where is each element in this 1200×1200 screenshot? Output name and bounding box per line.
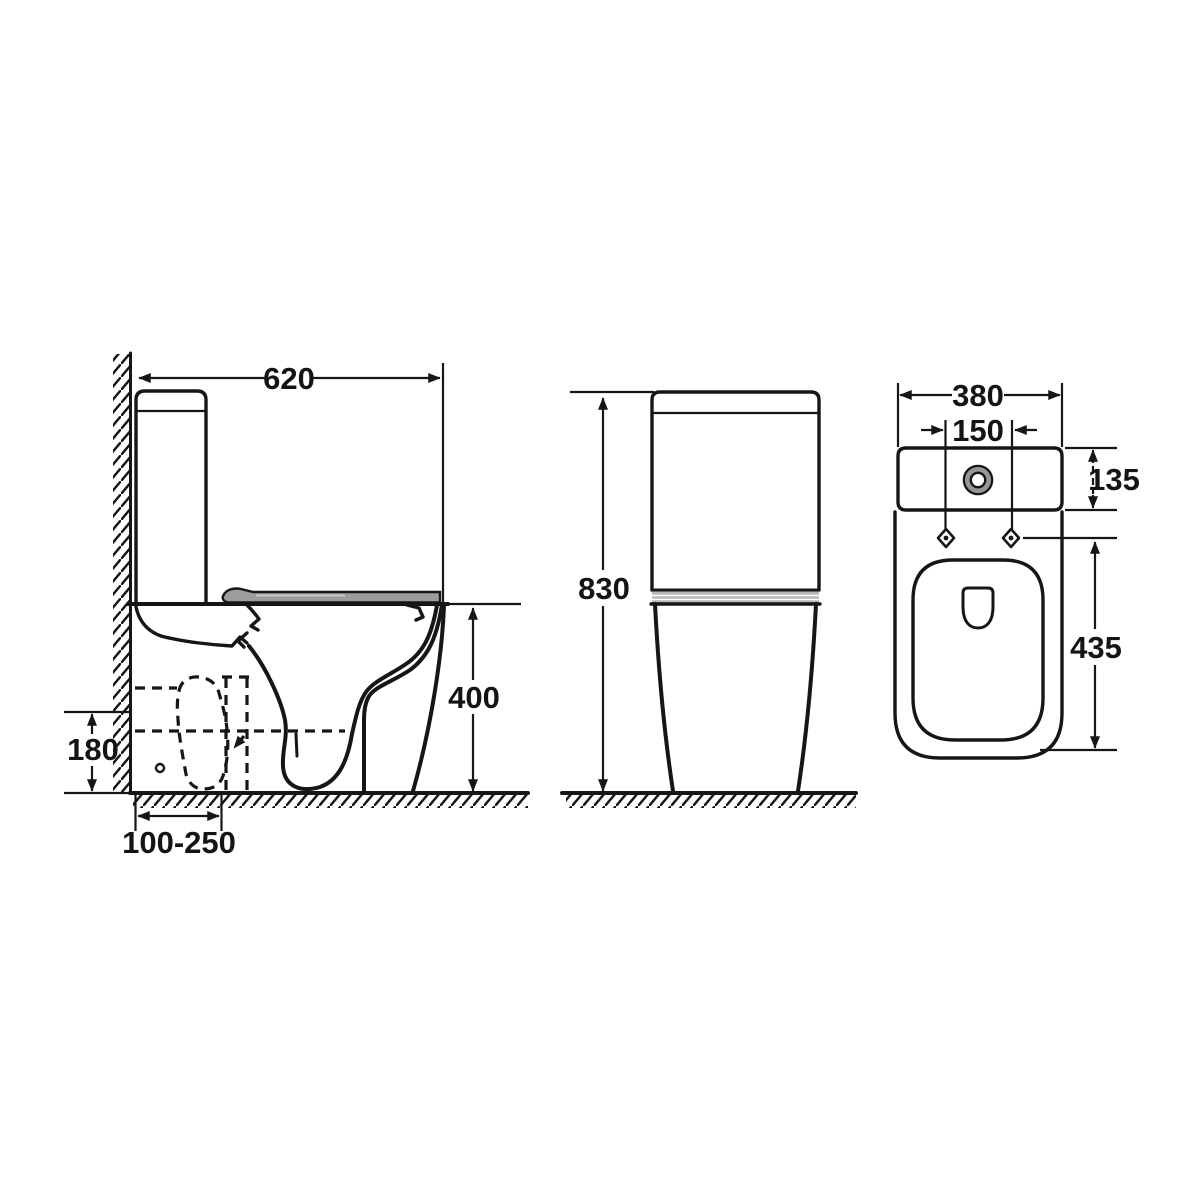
dim-400: 400 xyxy=(448,608,500,791)
flush-outlet-plan xyxy=(963,588,993,628)
dim-830: 830 xyxy=(570,392,654,791)
flow-arrow-dashed xyxy=(234,736,244,748)
seat-bumper-mark xyxy=(407,605,423,620)
seat-hinge-mark xyxy=(247,605,259,630)
wall-hatch xyxy=(113,354,130,793)
dim-135-label: 135 xyxy=(1088,462,1140,497)
joint-band xyxy=(652,591,819,603)
dim-150-label: 150 xyxy=(952,413,1004,448)
pedestal-right-edge xyxy=(798,604,816,791)
technical-drawing-page: 620 400 180 100-250 xyxy=(0,0,1200,1200)
side-view: 620 400 180 100-250 xyxy=(64,353,528,860)
fixing-hole-left-dot xyxy=(944,536,949,541)
toilet-dimension-diagram: 620 400 180 100-250 xyxy=(0,0,1200,1200)
fixing-hole-right-dot xyxy=(1009,536,1014,541)
floor-hatch-front xyxy=(566,795,856,808)
cistern-plan xyxy=(898,448,1062,510)
dim-180-label: 180 xyxy=(67,732,119,767)
dim-435-label: 435 xyxy=(1070,630,1122,665)
dim-830-label: 830 xyxy=(578,571,630,606)
cistern-profile xyxy=(136,391,206,604)
dim-435: 435 xyxy=(1040,542,1122,750)
dim-135: 135 xyxy=(1065,448,1140,510)
cistern-front xyxy=(652,392,819,590)
dim-620-label: 620 xyxy=(263,361,315,396)
dim-620: 620 xyxy=(139,361,443,606)
dim-setout-label: 100-250 xyxy=(122,825,236,860)
bowl-inner-shelf xyxy=(136,607,247,646)
top-view: 380 150 135 xyxy=(895,378,1140,758)
dim-400-label: 400 xyxy=(448,680,500,715)
pedestal-left-edge xyxy=(655,604,673,791)
front-view: 830 xyxy=(562,392,856,808)
flush-button-inner xyxy=(971,473,985,487)
bowl-interior-curve xyxy=(249,605,437,789)
weir-line xyxy=(296,734,297,756)
dim-380-label: 380 xyxy=(952,378,1004,413)
fixing-holes xyxy=(938,529,1117,547)
trap-dashed-outline xyxy=(177,677,227,789)
fixing-hole-side xyxy=(156,764,164,772)
floor-hatch-side xyxy=(133,795,528,808)
